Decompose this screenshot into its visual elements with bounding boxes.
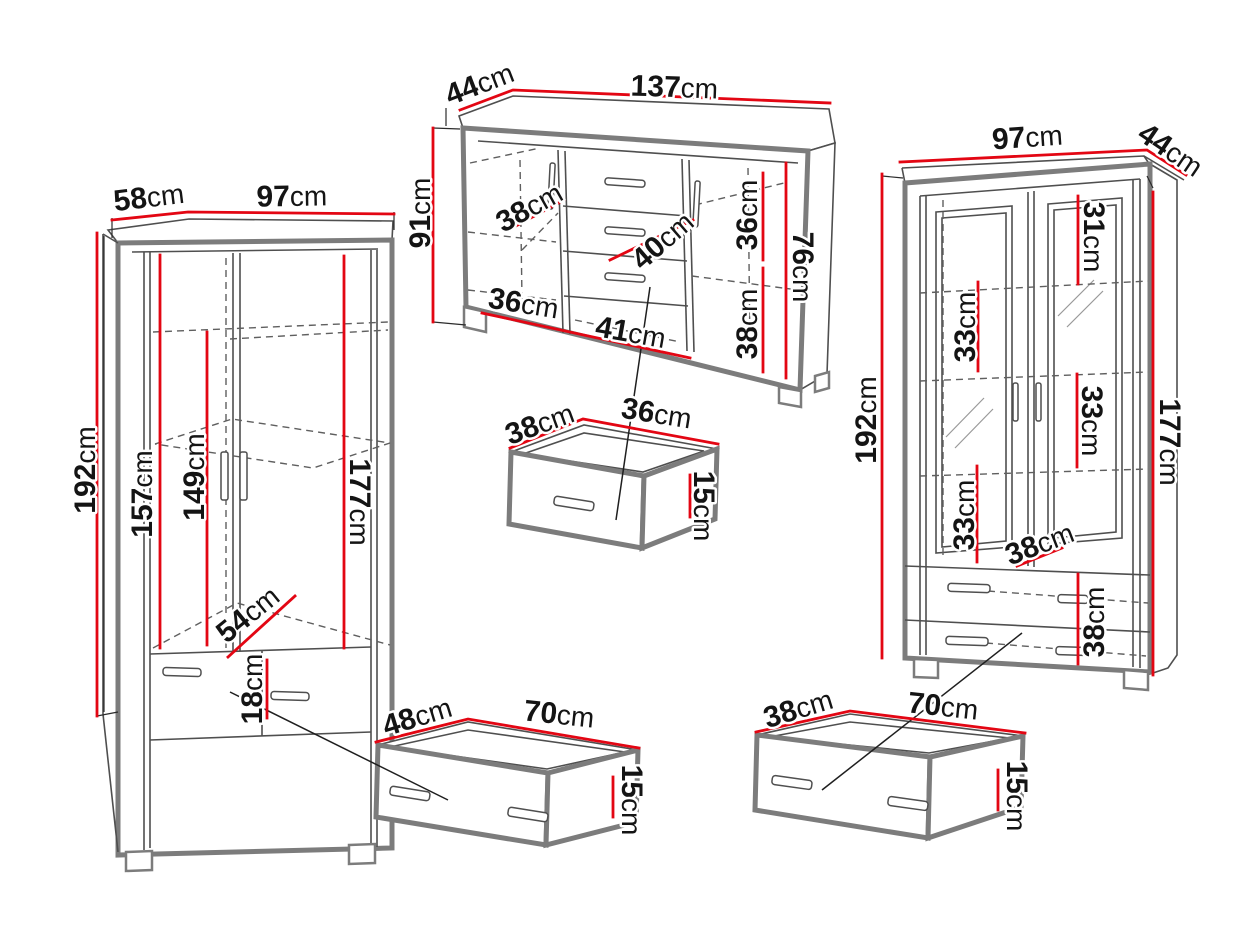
cabinet-drawer1-handle-left (948, 583, 990, 592)
dim-sbdrawer-height: 15cm (687, 471, 720, 542)
diagram-canvas: 58cm 97cm 192cm 157cm 149cm 177cm 54cm 1… (0, 0, 1250, 938)
dim-sideboard-right-lower: 38cm (731, 289, 764, 360)
sideboard-foot-right (779, 387, 801, 407)
cabinet-drawer-drawing (755, 714, 1023, 838)
furniture-dimension-diagram: 58cm 97cm 192cm 157cm 149cm 177cm 54cm 1… (0, 0, 1250, 938)
cabinet-drawer2-handle-left (946, 636, 988, 645)
display-cabinet-drawing (882, 156, 1184, 690)
dim-cdrawer-height: 15cm (1000, 761, 1033, 832)
dim-cabinet-height: 192cm (850, 376, 883, 463)
dim-sideboard-height: 91cm (404, 178, 437, 249)
dim-cabinet-middle-right: 33cm (1075, 386, 1108, 457)
cabinet-foot-right (1124, 670, 1148, 690)
wardrobe-drawer-handle-right (271, 691, 309, 700)
dim-wdrawer-width: 70cm (522, 694, 596, 734)
sideboard-drawer-drawing (509, 425, 717, 548)
dim-cabinet-lower-left: 33cm (948, 480, 981, 551)
dim-wardrobe-interior-right: 177cm (343, 458, 376, 545)
dim-cabinet-top-section: 31cm (1077, 202, 1110, 273)
wardrobe-foot-right (349, 844, 375, 864)
cabinet-door-handle-left (1013, 383, 1018, 421)
dim-cabinet-drawer-section: 38cm (1078, 587, 1111, 658)
dim-sideboard-width: 137cm (630, 69, 718, 105)
sideboard-foot-side (815, 372, 829, 392)
dim-wardrobe-height: 192cm (69, 426, 102, 513)
dim-wdrawer-height: 15cm (615, 765, 648, 836)
dim-sideboard-right-upper: 36cm (731, 180, 764, 251)
dim-wardrobe-interior-rail: 149cm (178, 433, 211, 520)
dim-cabinet-interior-right: 177cm (1153, 398, 1186, 485)
wardrobe-drawer-handle-left (163, 667, 201, 676)
dim-wardrobe-interior-left: 157cm (126, 450, 159, 537)
cabinet-door-handle-right (1036, 383, 1041, 421)
wardrobe-door-handle-left (221, 452, 228, 500)
dim-sideboard-right-total: 76cm (786, 232, 819, 303)
dim-wardrobe-drawer-front: 18cm (236, 654, 269, 725)
sideboard-foot-left (464, 307, 486, 332)
dim-cabinet-upper-left: 33cm (949, 292, 982, 363)
wardrobe-door-handle-right (240, 452, 247, 500)
dim-wardrobe-width: 97cm (256, 179, 327, 213)
cabinet-foot-left (914, 659, 938, 678)
dim-cabinet-width: 97cm (991, 119, 1064, 157)
wardrobe-foot-left (126, 851, 152, 871)
